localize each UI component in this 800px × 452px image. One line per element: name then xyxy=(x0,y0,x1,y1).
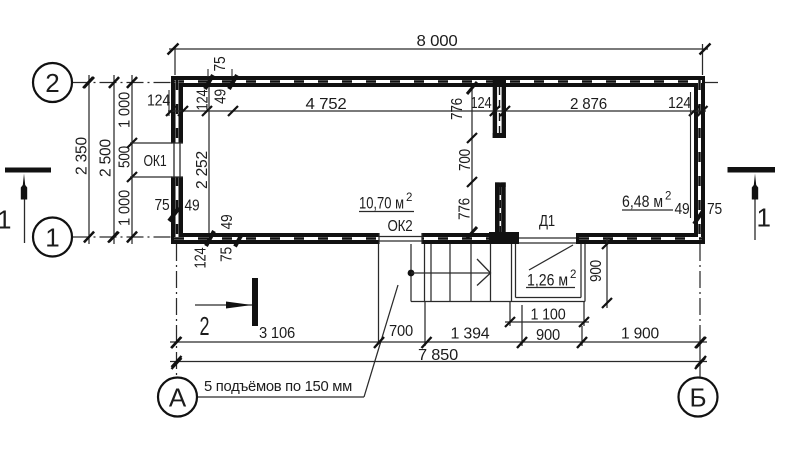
svg-text:900: 900 xyxy=(588,259,605,282)
svg-text:75: 75 xyxy=(219,247,236,262)
svg-text:49: 49 xyxy=(219,215,236,230)
svg-text:1: 1 xyxy=(757,203,771,233)
svg-text:1 000: 1 000 xyxy=(117,91,134,128)
svg-text:124: 124 xyxy=(668,95,692,112)
svg-text:2: 2 xyxy=(45,68,59,98)
svg-text:49: 49 xyxy=(185,198,200,215)
svg-text:7 850: 7 850 xyxy=(418,347,459,364)
svg-text:2 876: 2 876 xyxy=(570,96,607,113)
svg-text:2 252: 2 252 xyxy=(194,151,211,189)
svg-text:8 000: 8 000 xyxy=(417,33,459,50)
svg-text:ОК1: ОК1 xyxy=(144,153,167,170)
svg-text:49: 49 xyxy=(213,89,230,104)
svg-text:49: 49 xyxy=(675,201,690,218)
svg-text:2: 2 xyxy=(665,191,671,203)
svg-text:6,48 м: 6,48 м xyxy=(622,192,663,211)
svg-text:А: А xyxy=(169,383,187,413)
svg-text:1 394: 1 394 xyxy=(451,326,491,343)
svg-text:700: 700 xyxy=(389,323,414,340)
svg-text:5 подъёмов по 150 мм: 5 подъёмов по 150 мм xyxy=(204,378,352,395)
svg-text:ОК2: ОК2 xyxy=(388,218,413,235)
svg-text:2: 2 xyxy=(406,192,412,204)
svg-text:124: 124 xyxy=(147,93,171,110)
svg-text:2 500: 2 500 xyxy=(98,138,115,177)
svg-text:2 350: 2 350 xyxy=(74,136,91,175)
svg-text:2: 2 xyxy=(570,269,576,281)
svg-text:Б: Б xyxy=(689,383,706,413)
svg-text:1: 1 xyxy=(0,205,11,235)
svg-text:700: 700 xyxy=(457,148,474,171)
svg-text:75: 75 xyxy=(155,197,170,214)
svg-text:1 900: 1 900 xyxy=(621,326,660,343)
svg-text:900: 900 xyxy=(536,327,561,344)
svg-text:1,26 м: 1,26 м xyxy=(527,271,568,290)
svg-text:776: 776 xyxy=(449,98,466,120)
svg-text:500: 500 xyxy=(117,145,134,168)
svg-text:124: 124 xyxy=(193,247,210,268)
svg-text:2: 2 xyxy=(200,311,210,341)
svg-text:776: 776 xyxy=(457,198,474,220)
svg-text:75: 75 xyxy=(212,57,229,72)
svg-text:Д1: Д1 xyxy=(539,213,555,230)
svg-text:4 752: 4 752 xyxy=(306,96,347,113)
svg-text:1 100: 1 100 xyxy=(531,307,567,324)
svg-text:1 000: 1 000 xyxy=(117,189,134,226)
svg-text:75: 75 xyxy=(707,201,722,218)
svg-text:10,70 м: 10,70 м xyxy=(359,194,404,213)
svg-text:3 106: 3 106 xyxy=(259,325,295,342)
svg-text:124: 124 xyxy=(471,95,492,112)
svg-text:1: 1 xyxy=(45,223,59,253)
